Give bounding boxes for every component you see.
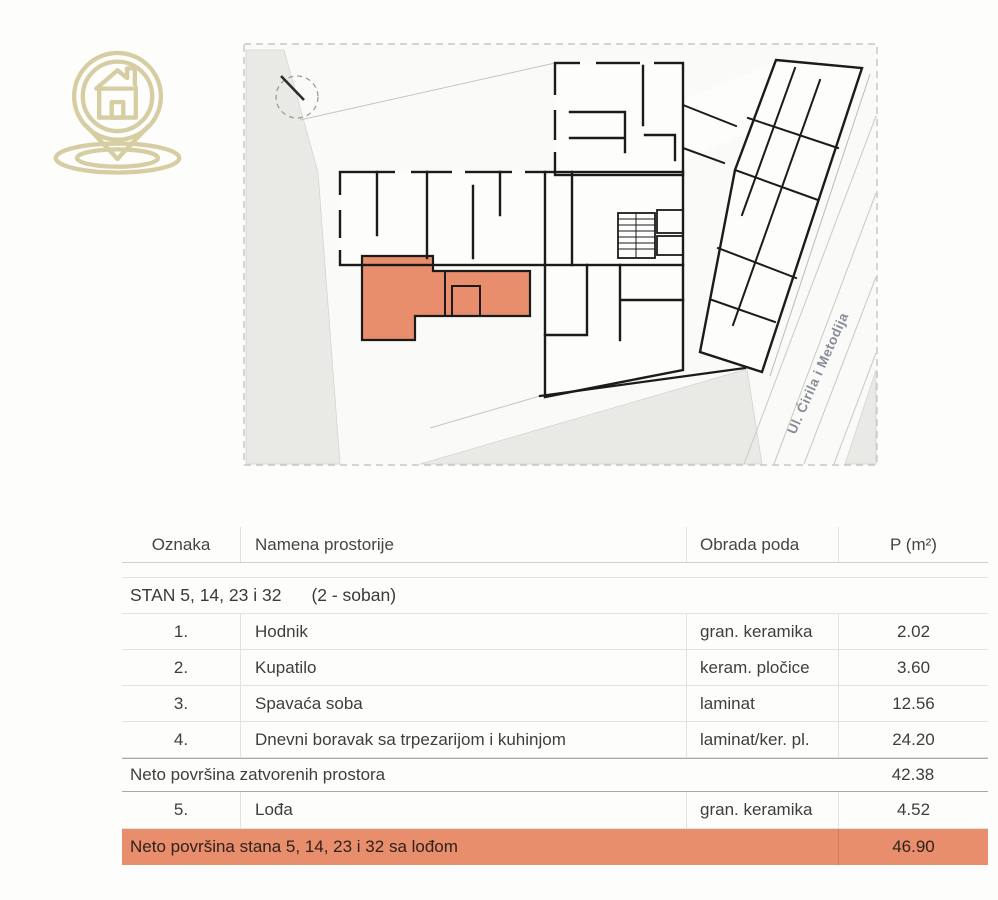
room-name: Spavaća soba (240, 686, 686, 721)
room-name: Lođa (240, 792, 686, 828)
area-table: Oznaka Namena prostorije Obrada poda P (… (122, 527, 988, 865)
row-num: 4. (122, 722, 240, 757)
floor-finish: keram. pločice (686, 650, 838, 685)
row-num: 2. (122, 650, 240, 685)
table-row: 2. Kupatilo keram. pločice 3.60 (122, 650, 988, 686)
room-area: 2.02 (838, 614, 988, 649)
table-row: 4. Dnevni boravak sa trpezarijom i kuhin… (122, 722, 988, 758)
room-area: 4.52 (838, 792, 988, 828)
floor-finish: laminat (686, 686, 838, 721)
room-area: 12.56 (838, 686, 988, 721)
apartment-subtitle: (2 - soban) (311, 585, 396, 606)
table-header-row: Oznaka Namena prostorije Obrada poda P (… (122, 527, 988, 563)
total-area: 46.90 (838, 829, 988, 865)
subtotal-area: 42.38 (838, 759, 988, 791)
floor-plan: Ul. Ćirila i Metodija (0, 0, 998, 520)
table-row: 3. Spavaća soba laminat 12.56 (122, 686, 988, 722)
apartment-section-row: STAN 5, 14, 23 i 32 (2 - soban) (122, 577, 988, 614)
header-oznaka: Oznaka (122, 527, 240, 562)
room-name: Hodnik (240, 614, 686, 649)
total-label: Neto površina stana 5, 14, 23 i 32 sa lo… (122, 829, 838, 865)
brochure-page: Ul. Ćirila i Metodija Oznaka Namena pros… (0, 0, 998, 900)
loggia-row: 5. Lođa gran. keramika 4.52 (122, 792, 988, 829)
row-num: 1. (122, 614, 240, 649)
floor-finish: gran. keramika (686, 792, 838, 828)
row-num: 3. (122, 686, 240, 721)
room-name: Dnevni boravak sa trpezarijom i kuhinjom (240, 722, 686, 757)
room-area: 3.60 (838, 650, 988, 685)
header-obrada: Obrada poda (686, 527, 838, 562)
room-name: Kupatilo (240, 650, 686, 685)
header-namena: Namena prostorije (240, 527, 686, 562)
subtotal-row: Neto površina zatvorenih prostora 42.38 (122, 758, 988, 792)
row-num: 5. (122, 792, 240, 828)
total-row: Neto površina stana 5, 14, 23 i 32 sa lo… (122, 829, 988, 865)
room-area: 24.20 (838, 722, 988, 757)
header-p-m2: P (m²) (838, 527, 988, 562)
floor-finish: laminat/ker. pl. (686, 722, 838, 757)
apartment-title: STAN 5, 14, 23 i 32 (130, 585, 281, 606)
floor-finish: gran. keramika (686, 614, 838, 649)
table-row: 1. Hodnik gran. keramika 2.02 (122, 614, 988, 650)
subtotal-label: Neto površina zatvorenih prostora (122, 759, 838, 791)
